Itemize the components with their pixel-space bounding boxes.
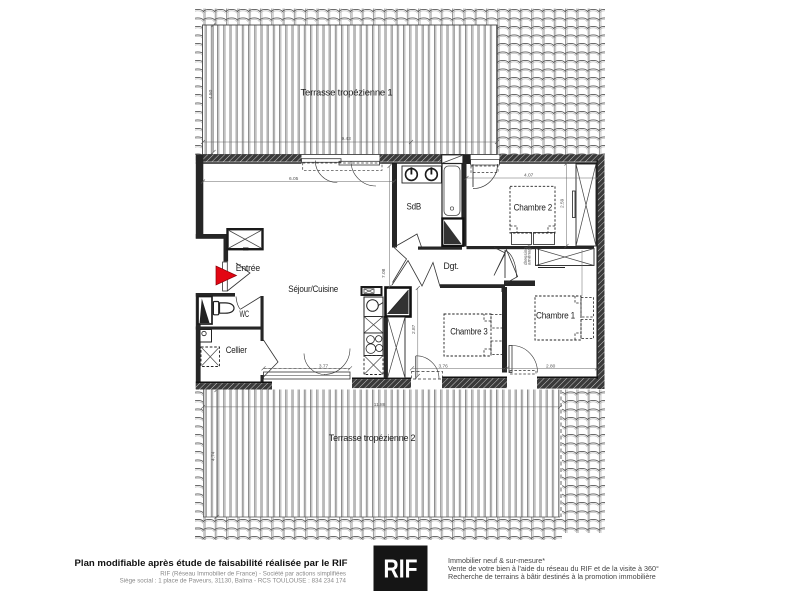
svg-text:4.74: 4.74: [211, 451, 217, 461]
svg-text:2.80: 2.80: [546, 363, 556, 369]
svg-text:3.77: 3.77: [319, 363, 329, 369]
svg-text:7.08: 7.08: [381, 268, 387, 278]
svg-text:Terrasse tropézienne 1: Terrasse tropézienne 1: [301, 88, 393, 98]
svg-text:Dgt.: Dgt.: [444, 261, 459, 271]
svg-text:aménagé: aménagé: [527, 245, 533, 265]
svg-text:Chambre 2: Chambre 2: [514, 202, 553, 212]
svg-text:6.05: 6.05: [289, 176, 299, 182]
svg-text:Chambre 3: Chambre 3: [450, 326, 488, 336]
svg-text:SdB: SdB: [407, 202, 422, 212]
svg-text:Recherche de terrains à bâtir: Recherche de terrains à bâtir destinés à…: [448, 572, 656, 581]
svg-text:Terrasse tropézienne 2: Terrasse tropézienne 2: [329, 433, 416, 443]
svg-text:Chambre 1: Chambre 1: [536, 311, 575, 321]
svg-text:Cellier: Cellier: [226, 345, 247, 355]
svg-text:Plan modifiable après étude de: Plan modifiable après étude de faisabili…: [75, 558, 348, 569]
svg-text:3.76: 3.76: [439, 363, 449, 369]
svg-text:4.07: 4.07: [524, 173, 534, 179]
svg-text:Entrée: Entrée: [236, 263, 260, 273]
svg-text:11.88: 11.88: [374, 402, 386, 408]
svg-text:9.43: 9.43: [342, 136, 352, 142]
svg-text:WC: WC: [240, 309, 250, 319]
svg-text:4.50: 4.50: [208, 89, 214, 99]
svg-text:RIF (Réseau Immobilier de Fran: RIF (Réseau Immobilier de France) - Soci…: [160, 571, 346, 578]
svg-text:2.87: 2.87: [411, 324, 417, 334]
svg-text:RIF: RIF: [384, 556, 418, 584]
svg-text:2.59: 2.59: [560, 198, 566, 208]
svg-text:Siège social : 1 place de Pave: Siège social : 1 place de Paveurs, 31130…: [120, 578, 347, 585]
svg-text:Séjour/Cuisine: Séjour/Cuisine: [288, 284, 338, 294]
